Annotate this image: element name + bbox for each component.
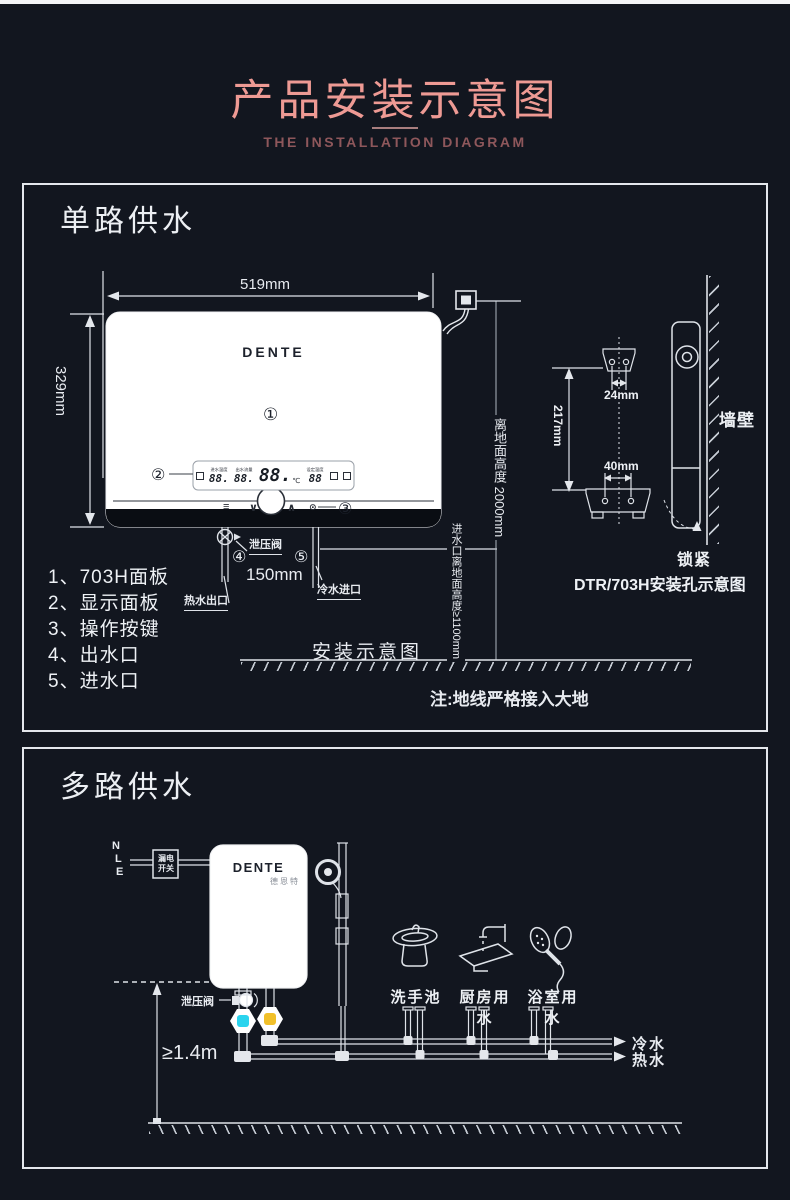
marker-4: ④	[232, 547, 246, 567]
cold-inlet-label: 冷水进口	[317, 581, 361, 600]
multi-supply-heading: 多路供水	[60, 762, 196, 806]
marker-5: ⑤	[294, 547, 308, 567]
brand-cn-label: 德恩特	[210, 876, 300, 887]
top-strip	[0, 0, 790, 4]
fixture-bathroom-label: 浴室用水	[520, 986, 586, 1028]
lock-label: 锁紧	[677, 546, 711, 570]
legend-item-3: 3、操作按键	[48, 614, 160, 641]
legend-item-1: 1、703H面板	[48, 562, 169, 589]
wire-l-label: L	[115, 853, 122, 865]
marker-1: ①	[263, 405, 278, 425]
legend-item-2: 2、显示面板	[48, 588, 160, 615]
dim-width-label: 519mm	[240, 276, 290, 293]
single-supply-heading: 单路供水	[60, 196, 196, 240]
title-divider	[372, 127, 418, 129]
relief-valve-label-2: 泄压阀	[181, 993, 214, 1009]
wire-n-label: N	[112, 840, 120, 852]
brand-logo: DENTE	[106, 344, 441, 360]
ground-hatch-single	[241, 662, 691, 671]
page-subtitle: THE INSTALLATION DIAGRAM	[0, 134, 790, 150]
pipe-gap-label: 150mm	[246, 565, 303, 585]
set-temp-group: 设定温度 88	[305, 468, 325, 484]
mode-icon	[196, 472, 204, 480]
wire-e-label: E	[116, 866, 123, 878]
min-height-label: ≥1.4m	[162, 1042, 217, 1065]
hole-gap-vertical-label: 217mm	[551, 405, 565, 446]
inlet-height-label: 进水口离地面高度≥1100mm	[447, 520, 465, 662]
lcd-display: 进水温度 88. 出水流量 88. 88. ℃ 设定温度 88	[194, 462, 353, 489]
installation-poster: 产品安装示意图 THE INSTALLATION DIAGRAM	[0, 0, 790, 1200]
marker-3: ③	[338, 499, 352, 519]
flow-group: 出水流量 88.	[234, 468, 254, 484]
legend-item-5: 5、进水口	[48, 666, 140, 693]
up-button: ∧	[287, 503, 296, 514]
brand-logo-small: DENTE	[210, 860, 307, 875]
down-button: ∨	[249, 503, 258, 514]
relief-valve-label: 泄压阀	[249, 536, 282, 555]
hole-gap-top-label: 24mm	[604, 388, 639, 402]
hot-outlet-label: 热水出口	[184, 592, 228, 611]
ground-hatch-multi	[149, 1125, 681, 1134]
hole-gap-bottom-label: 40mm	[604, 459, 639, 473]
fixture-basin-label: 洗手池	[390, 986, 442, 1007]
fixture-kitchen-label: 厨房用水	[452, 986, 518, 1028]
dim-height-label: 329mm	[52, 366, 69, 416]
timer-icon	[330, 472, 338, 480]
lock-icon	[343, 472, 351, 480]
mount-caption: DTR/703H安装孔示意图	[574, 571, 746, 595]
marker-2: ②	[151, 465, 165, 485]
menu-button: ≡	[223, 502, 229, 513]
multi-supply-panel	[22, 747, 768, 1169]
hot-water-label: 热水	[632, 1049, 666, 1070]
diagram-caption: 安装示意图	[312, 637, 422, 664]
legend-item-4: 4、出水口	[48, 640, 140, 667]
inlet-temp-group: 进水温度 88.	[209, 468, 229, 484]
wall-height-label: 离地面高度 2000mm	[489, 415, 510, 540]
ground-note: 注:地线严格接入大地	[430, 685, 589, 710]
breaker-label: 漏电 开关	[155, 854, 177, 874]
wall-label: 墙壁	[719, 406, 755, 431]
outlet-temp-group: 88. ℃	[259, 467, 300, 485]
power-icon: ⊙	[309, 503, 317, 512]
page-title: 产品安装示意图	[0, 66, 790, 128]
wall-hatch	[709, 276, 719, 544]
